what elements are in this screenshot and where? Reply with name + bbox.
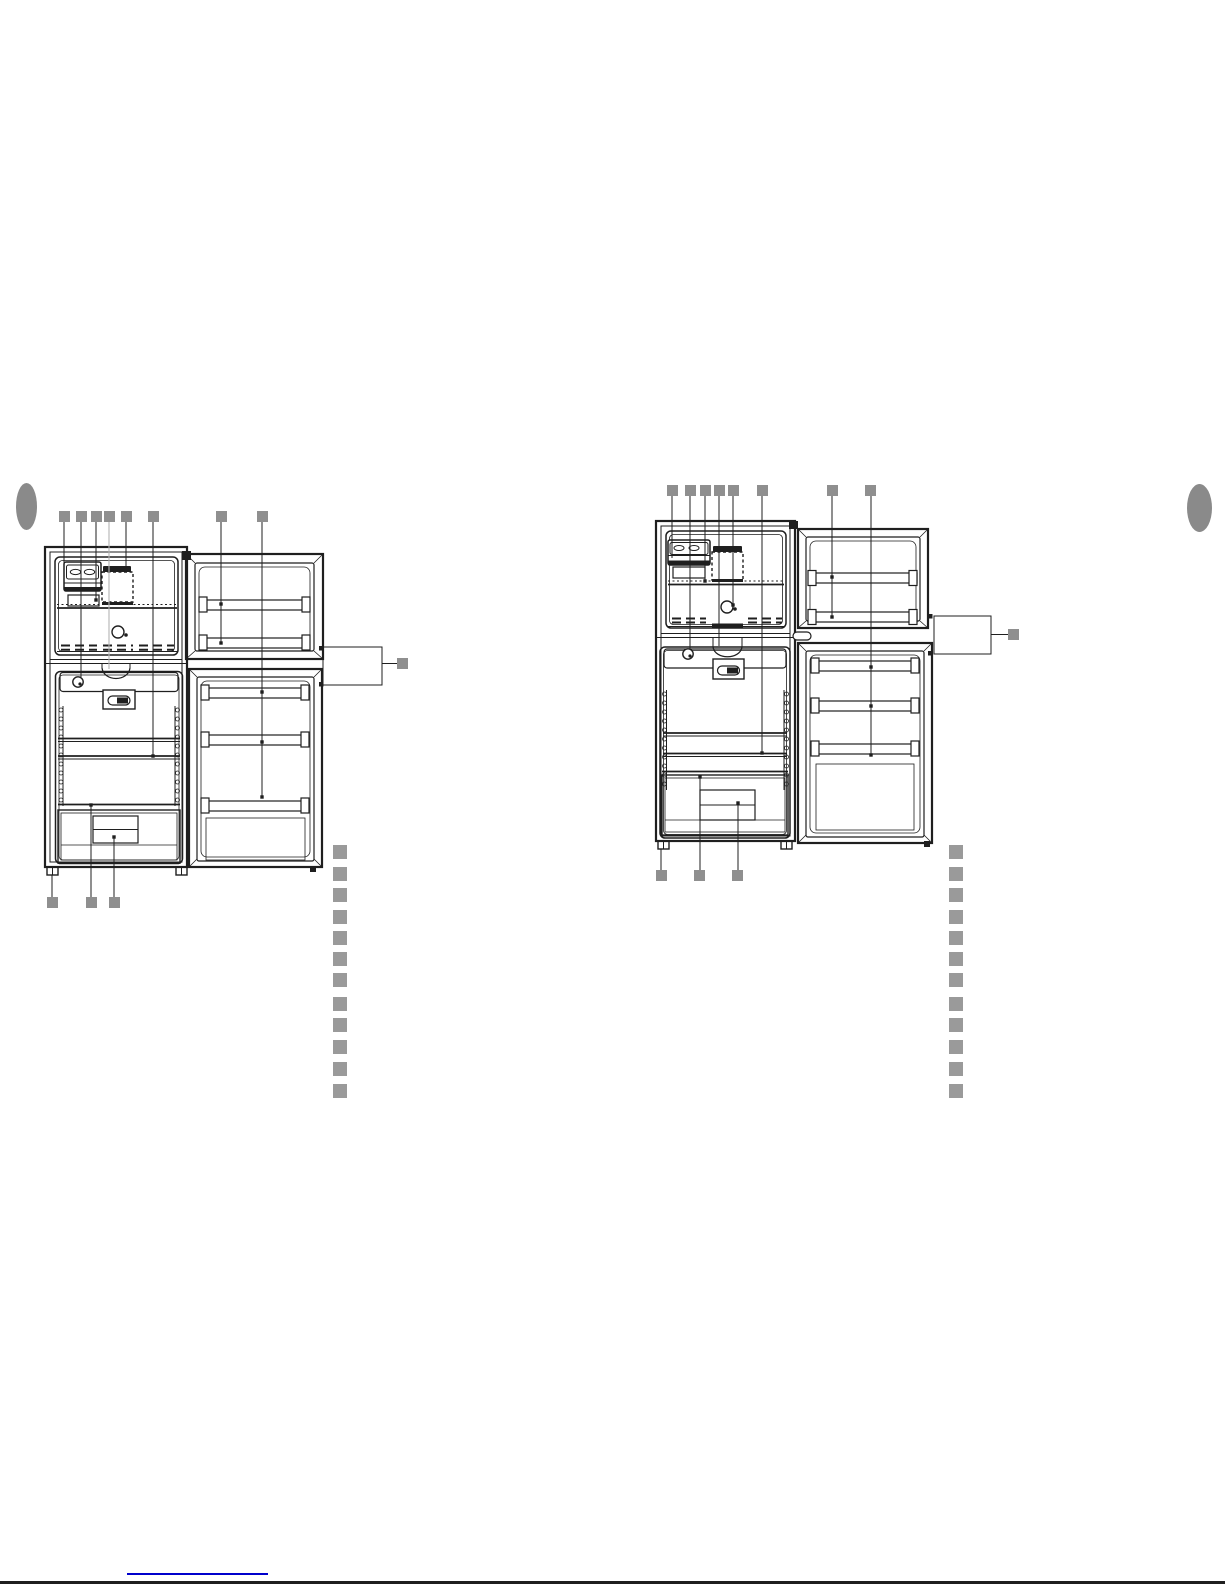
part-callout-marker	[121, 511, 132, 522]
air-vents	[61, 646, 174, 650]
crisper-drawer	[58, 805, 180, 864]
caption-text-placeholder	[333, 952, 347, 966]
caption-text-placeholder	[949, 931, 963, 945]
caption-text-placeholder	[333, 888, 347, 902]
part-callout-marker	[656, 870, 667, 881]
thermostat-knob	[73, 677, 83, 687]
fridge-shelves	[663, 733, 787, 757]
footer-link-underline[interactable]	[127, 1573, 268, 1575]
fridge-door	[189, 669, 322, 872]
control-panel	[713, 659, 744, 679]
caption-text-placeholder	[333, 845, 347, 859]
freezer-door-shelves	[199, 597, 310, 650]
caption-text-placeholder	[333, 910, 347, 924]
part-callout-marker	[700, 485, 711, 496]
cabinet-feet	[658, 841, 792, 849]
caption-text-placeholder	[333, 1084, 347, 1098]
caption-text-placeholder	[949, 888, 963, 902]
part-callout-marker	[397, 658, 408, 669]
caption-text-placeholder	[949, 952, 963, 966]
caption-text-placeholder	[333, 997, 347, 1011]
part-callout-marker	[728, 485, 739, 496]
fridge-door-shelves	[201, 685, 309, 813]
page-side-oval-right	[1187, 484, 1212, 532]
part-callout-marker	[47, 897, 58, 908]
fridge-door-shelves	[811, 658, 919, 756]
door-hinge-top	[789, 521, 798, 529]
fridge-shelves	[58, 739, 180, 760]
caption-text-placeholder	[333, 1062, 347, 1076]
line-art-layer	[0, 0, 1225, 1585]
part-callout-marker	[1008, 629, 1019, 640]
part-callout-marker	[827, 485, 838, 496]
part-callout-marker	[109, 897, 120, 908]
freezer-door	[798, 529, 928, 628]
part-callout-marker	[76, 511, 87, 522]
caption-text-placeholder	[949, 1040, 963, 1054]
freezer-door-shelves	[808, 571, 917, 625]
caption-text-placeholder	[333, 1018, 347, 1032]
water-tank	[102, 566, 133, 605]
part-callout-marker	[257, 511, 268, 522]
page-side-oval-left	[16, 483, 37, 530]
manual-page	[0, 0, 1225, 1585]
caption-text-placeholder	[949, 1018, 963, 1032]
part-callout-marker	[714, 485, 725, 496]
control-panel	[103, 690, 135, 709]
caption-text-placeholder	[333, 973, 347, 987]
caption-text-placeholder	[949, 997, 963, 1011]
caption-text-placeholder	[949, 973, 963, 987]
part-callout-marker	[59, 511, 70, 522]
part-callout-marker	[104, 511, 115, 522]
part-callout-marker	[667, 485, 678, 496]
part-callout-marker	[865, 485, 876, 496]
page-bottom-rule	[0, 1581, 1225, 1584]
freezer-temp-knob	[721, 601, 737, 613]
freezer-temp-knob	[112, 626, 128, 638]
part-callout-marker	[732, 870, 743, 881]
caption-text-placeholder	[949, 1084, 963, 1098]
freezer-door	[186, 554, 323, 659]
crisper-drawer	[662, 772, 788, 836]
part-callout-marker	[91, 511, 102, 522]
thermostat-knob	[683, 649, 693, 659]
door-seal-callout-bracket	[319, 646, 397, 687]
caption-text-placeholder	[949, 910, 963, 924]
caption-text-placeholder	[333, 867, 347, 881]
caption-text-placeholder	[333, 1040, 347, 1054]
water-tank	[712, 546, 743, 582]
part-callout-marker	[694, 870, 705, 881]
part-callout-marker	[86, 897, 97, 908]
part-callout-marker	[148, 511, 159, 522]
fridge-door	[798, 643, 932, 847]
part-callout-marker	[216, 511, 227, 522]
caption-text-placeholder	[949, 1062, 963, 1076]
part-callout-marker	[685, 485, 696, 496]
caption-text-placeholder	[949, 845, 963, 859]
caption-text-placeholder	[333, 931, 347, 945]
refrigerator-diagram-right	[656, 496, 1008, 870]
refrigerator-diagram-left	[45, 522, 397, 897]
ice-maker	[668, 540, 710, 578]
cabinet-feet	[47, 867, 187, 875]
caption-text-placeholder	[949, 867, 963, 881]
mid-latch	[793, 632, 811, 640]
door-seal-callout-bracket	[928, 614, 1008, 656]
part-callout-marker	[757, 485, 768, 496]
